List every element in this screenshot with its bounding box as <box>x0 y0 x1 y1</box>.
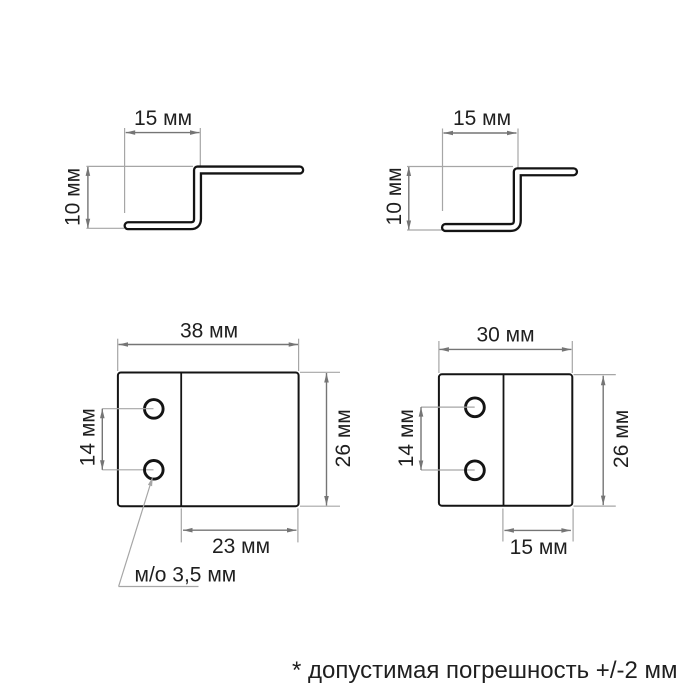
svg-text:10 мм: 10 мм <box>383 167 406 225</box>
svg-text:15 мм: 15 мм <box>134 107 192 130</box>
svg-text:23 мм: 23 мм <box>212 535 270 558</box>
svg-text:30 мм: 30 мм <box>476 324 534 347</box>
svg-text:14 мм: 14 мм <box>77 408 100 466</box>
svg-text:15 мм: 15 мм <box>510 536 568 559</box>
svg-text:14 мм: 14 мм <box>395 409 418 467</box>
svg-text:26 мм: 26 мм <box>332 409 355 467</box>
svg-text:38 мм: 38 мм <box>180 320 238 343</box>
svg-text:10 мм: 10 мм <box>62 168 85 226</box>
svg-text:26 мм: 26 мм <box>610 410 633 468</box>
svg-text:м/о 3,5 мм: м/о 3,5 мм <box>135 564 237 587</box>
svg-text:* допустимая погрешность +/-2: * допустимая погрешность +/-2 мм <box>292 657 678 684</box>
svg-text:15 мм: 15 мм <box>453 107 511 130</box>
